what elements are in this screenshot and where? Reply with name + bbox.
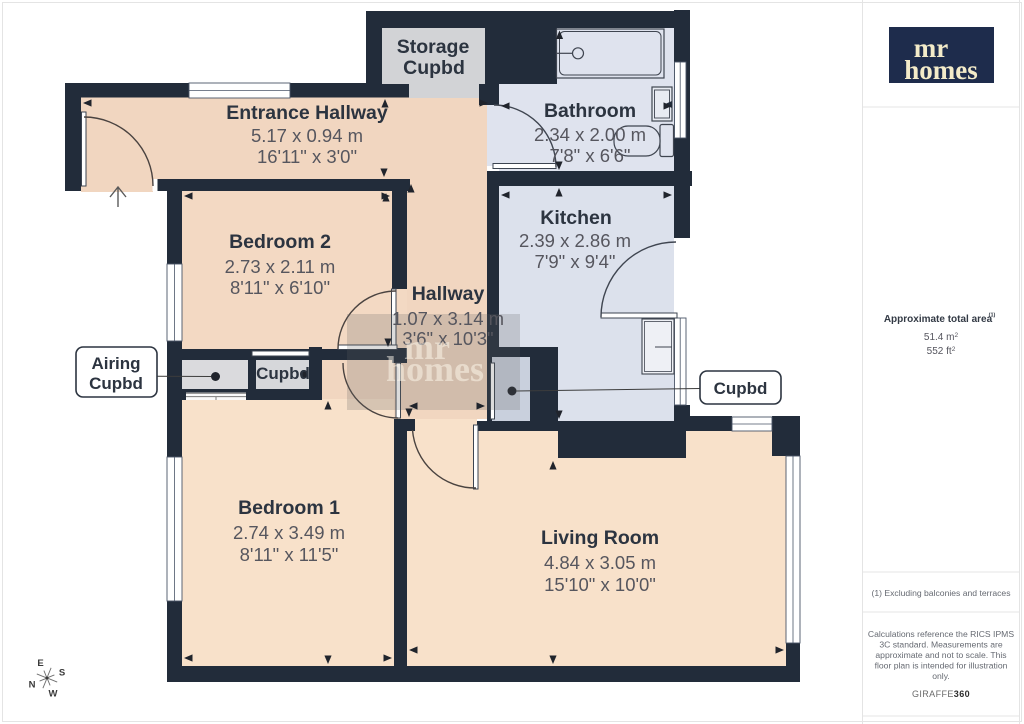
svg-text:(1): (1): [989, 313, 996, 319]
svg-text:approximate and not to scale.: approximate and not to scale. This: [875, 650, 1006, 660]
svg-text:Storage: Storage: [397, 36, 470, 58]
svg-text:Hallway: Hallway: [412, 283, 485, 305]
svg-text:W: W: [49, 689, 58, 700]
svg-text:552 ft2: 552 ft2: [927, 346, 956, 357]
svg-text:Bedroom 1: Bedroom 1: [238, 497, 340, 519]
svg-text:8'11" x 6'10": 8'11" x 6'10": [230, 277, 330, 298]
svg-text:E: E: [37, 658, 43, 669]
svg-text:S: S: [59, 668, 65, 679]
svg-text:51.4 m2: 51.4 m2: [924, 332, 959, 343]
svg-text:floor plan is intended for ill: floor plan is intended for illustration: [875, 661, 1008, 671]
svg-text:Entrance Hallway: Entrance Hallway: [226, 102, 388, 124]
svg-text:GIRAFFE360: GIRAFFE360: [912, 689, 970, 699]
svg-text:Approximate total area: Approximate total area: [884, 314, 993, 325]
svg-text:Bedroom 2: Bedroom 2: [229, 231, 331, 253]
svg-text:5.17 x 0.94 m: 5.17 x 0.94 m: [251, 125, 363, 146]
svg-text:Kitchen: Kitchen: [540, 207, 612, 229]
svg-text:4.84 x 3.05 m: 4.84 x 3.05 m: [544, 552, 656, 573]
svg-text:Cupbd: Cupbd: [403, 57, 465, 79]
svg-text:Living Room: Living Room: [541, 527, 659, 549]
svg-text:Cupbd: Cupbd: [256, 364, 310, 383]
svg-text:(1) Excluding balconies and te: (1) Excluding balconies and terraces: [871, 588, 1010, 598]
svg-text:Cupbd: Cupbd: [89, 374, 143, 393]
svg-text:3C standard. Measurements are: 3C standard. Measurements are: [879, 640, 1002, 650]
svg-text:Bathroom: Bathroom: [544, 100, 636, 122]
svg-text:homes: homes: [904, 55, 978, 85]
svg-text:2.34 x 2.00 m: 2.34 x 2.00 m: [534, 124, 646, 145]
svg-text:Airing: Airing: [91, 354, 140, 373]
svg-text:only.: only.: [932, 671, 950, 681]
svg-text:15'10" x 10'0": 15'10" x 10'0": [544, 574, 656, 595]
svg-text:7'9" x 9'4": 7'9" x 9'4": [535, 251, 616, 272]
svg-text:Calculations reference the RIC: Calculations reference the RICS IPMS: [868, 629, 1014, 639]
svg-text:Cupbd: Cupbd: [714, 379, 768, 398]
svg-text:2.73 x 2.11 m: 2.73 x 2.11 m: [225, 256, 336, 277]
svg-text:2.74 x 3.49 m: 2.74 x 3.49 m: [233, 522, 345, 543]
svg-text:N: N: [29, 680, 36, 691]
svg-text:16'11" x 3'0": 16'11" x 3'0": [257, 146, 357, 167]
svg-text:1.07 x 3.14 m: 1.07 x 3.14 m: [392, 308, 504, 329]
svg-text:8'11" x 11'5": 8'11" x 11'5": [240, 544, 339, 565]
svg-text:2.39 x 2.86 m: 2.39 x 2.86 m: [519, 230, 631, 251]
svg-text:homes: homes: [386, 349, 484, 389]
